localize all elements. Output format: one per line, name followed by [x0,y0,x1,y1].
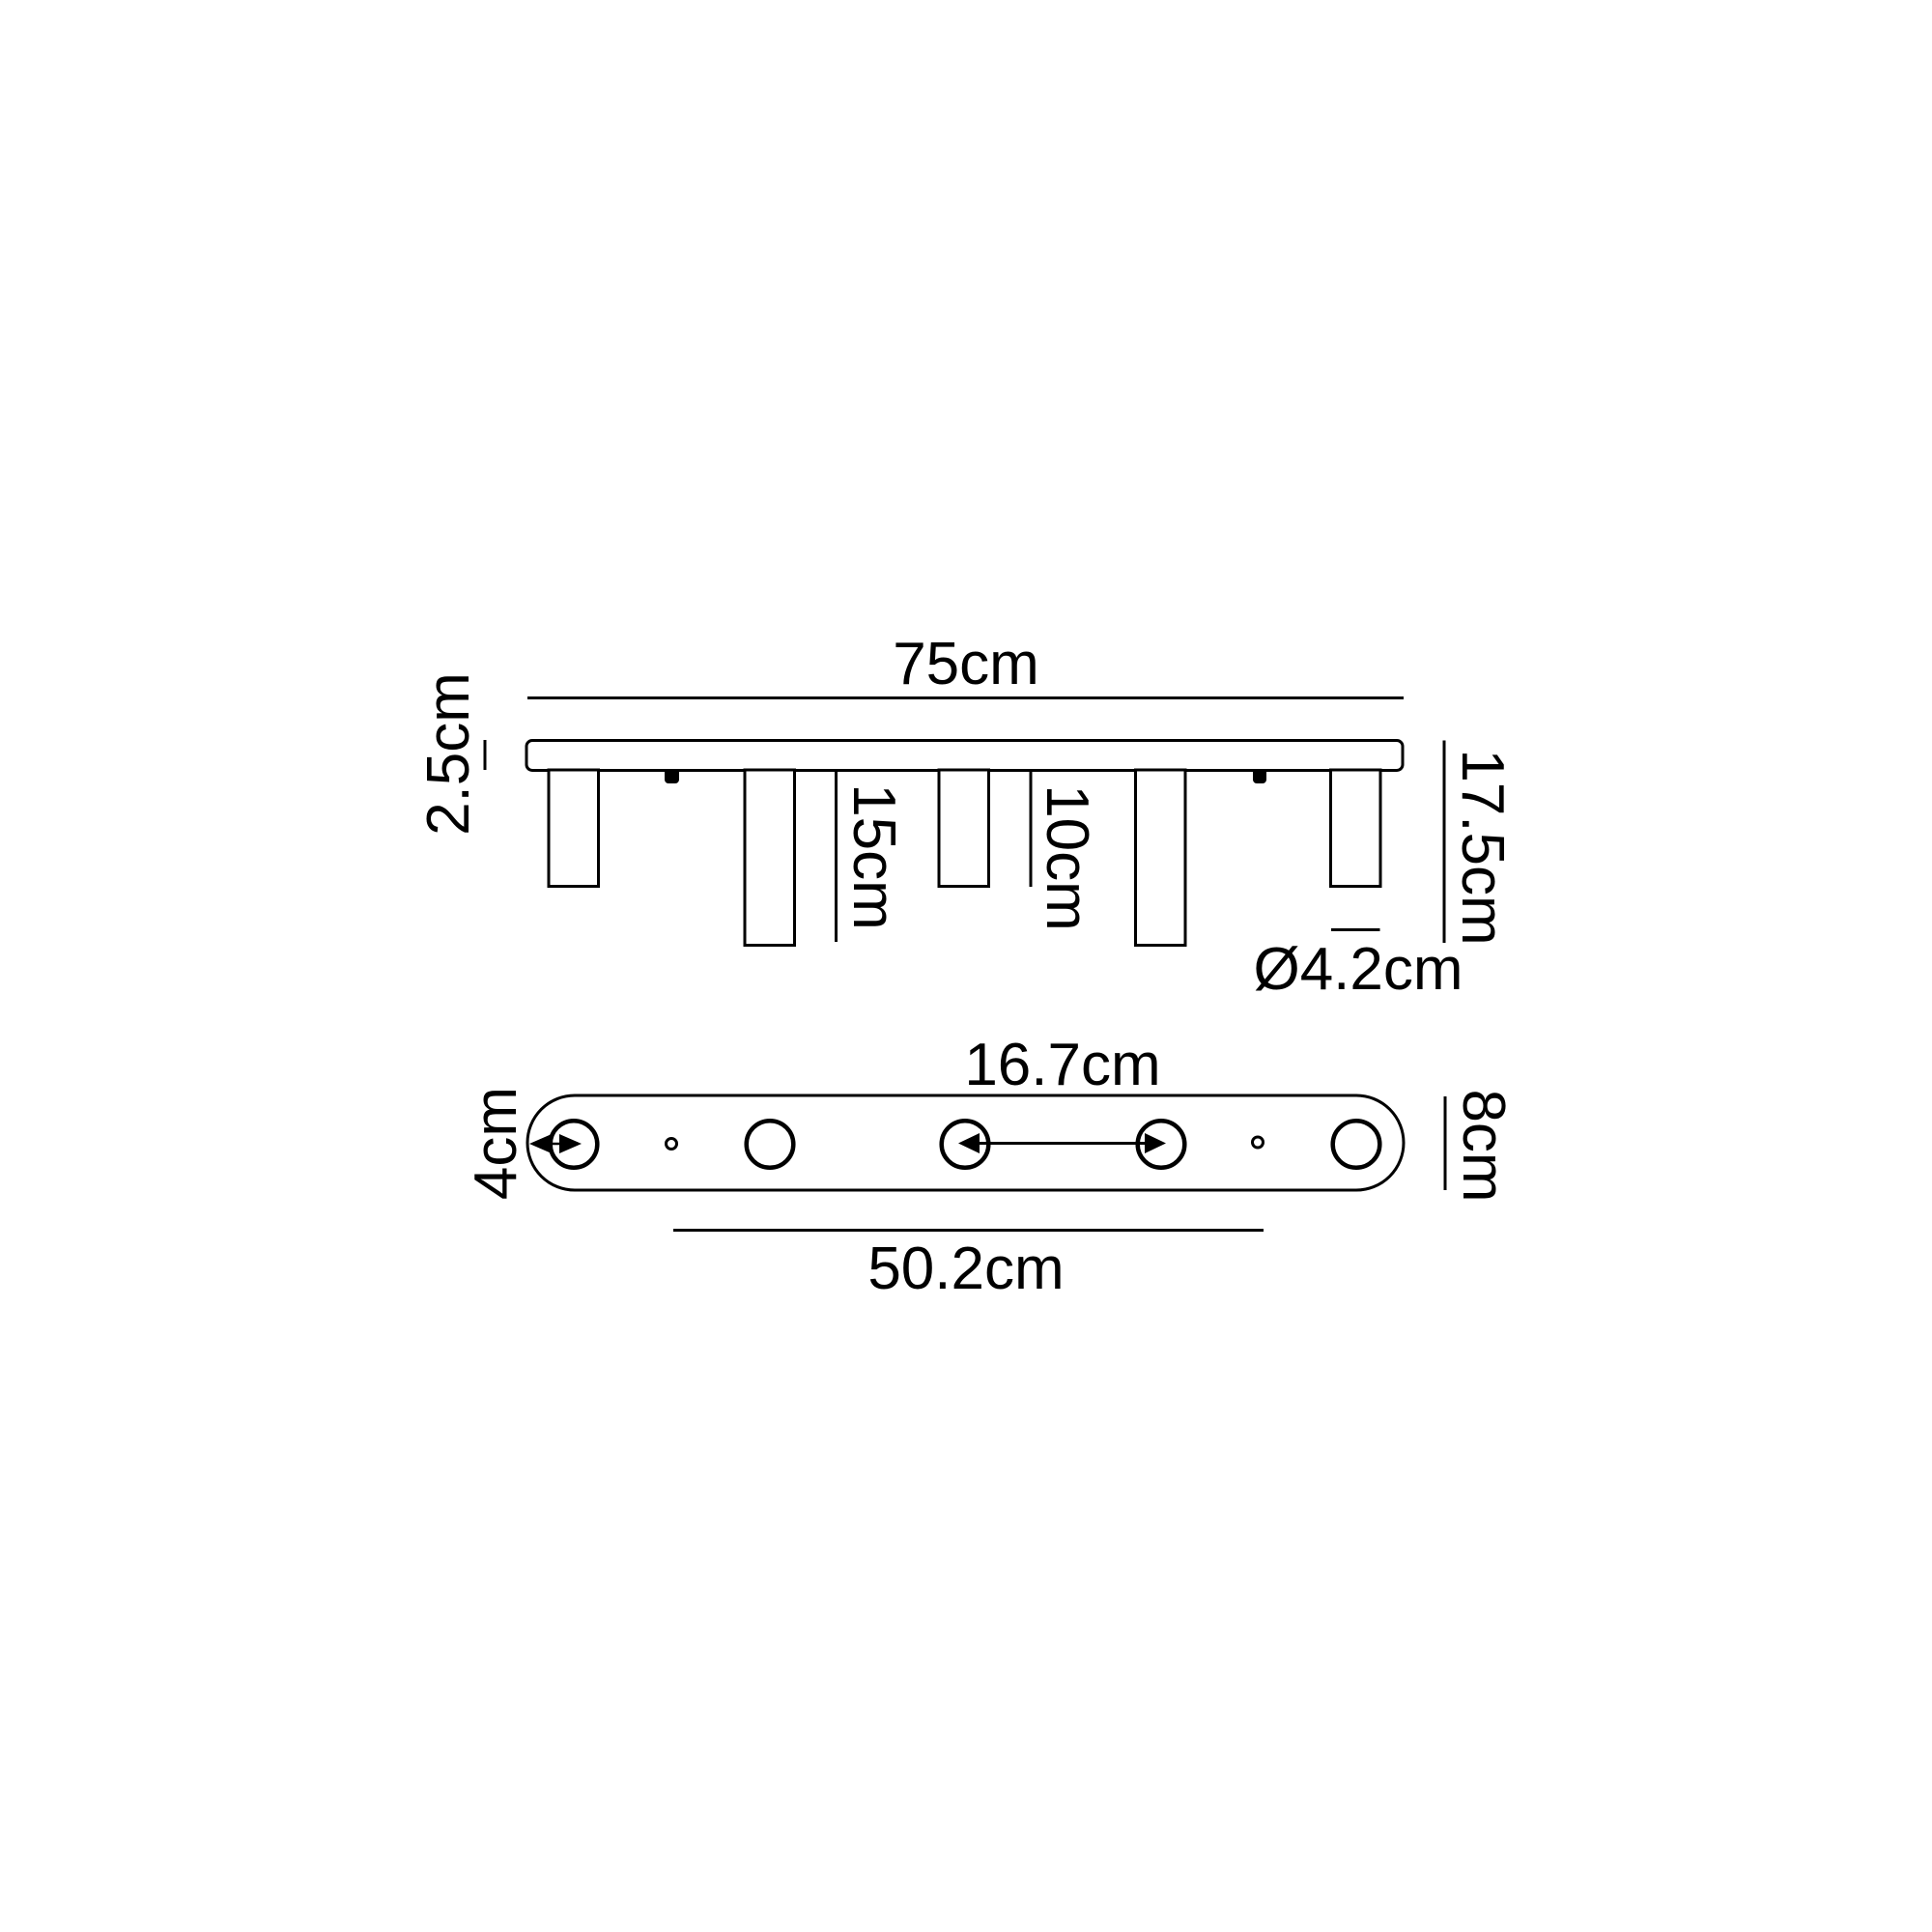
svg-text:Ø4.2cm: Ø4.2cm [1253,936,1463,1003]
svg-text:2.5cm: 2.5cm [415,672,482,836]
svg-text:4cm: 4cm [463,1087,529,1200]
svg-text:50.2cm: 50.2cm [867,1236,1064,1302]
svg-text:16.7cm: 16.7cm [964,1032,1160,1098]
svg-text:15cm: 15cm [840,783,907,930]
svg-text:10cm: 10cm [1034,784,1100,931]
svg-text:75cm: 75cm [893,631,1039,697]
svg-text:17.5cm: 17.5cm [1449,749,1516,945]
svg-text:8cm: 8cm [1450,1089,1517,1202]
